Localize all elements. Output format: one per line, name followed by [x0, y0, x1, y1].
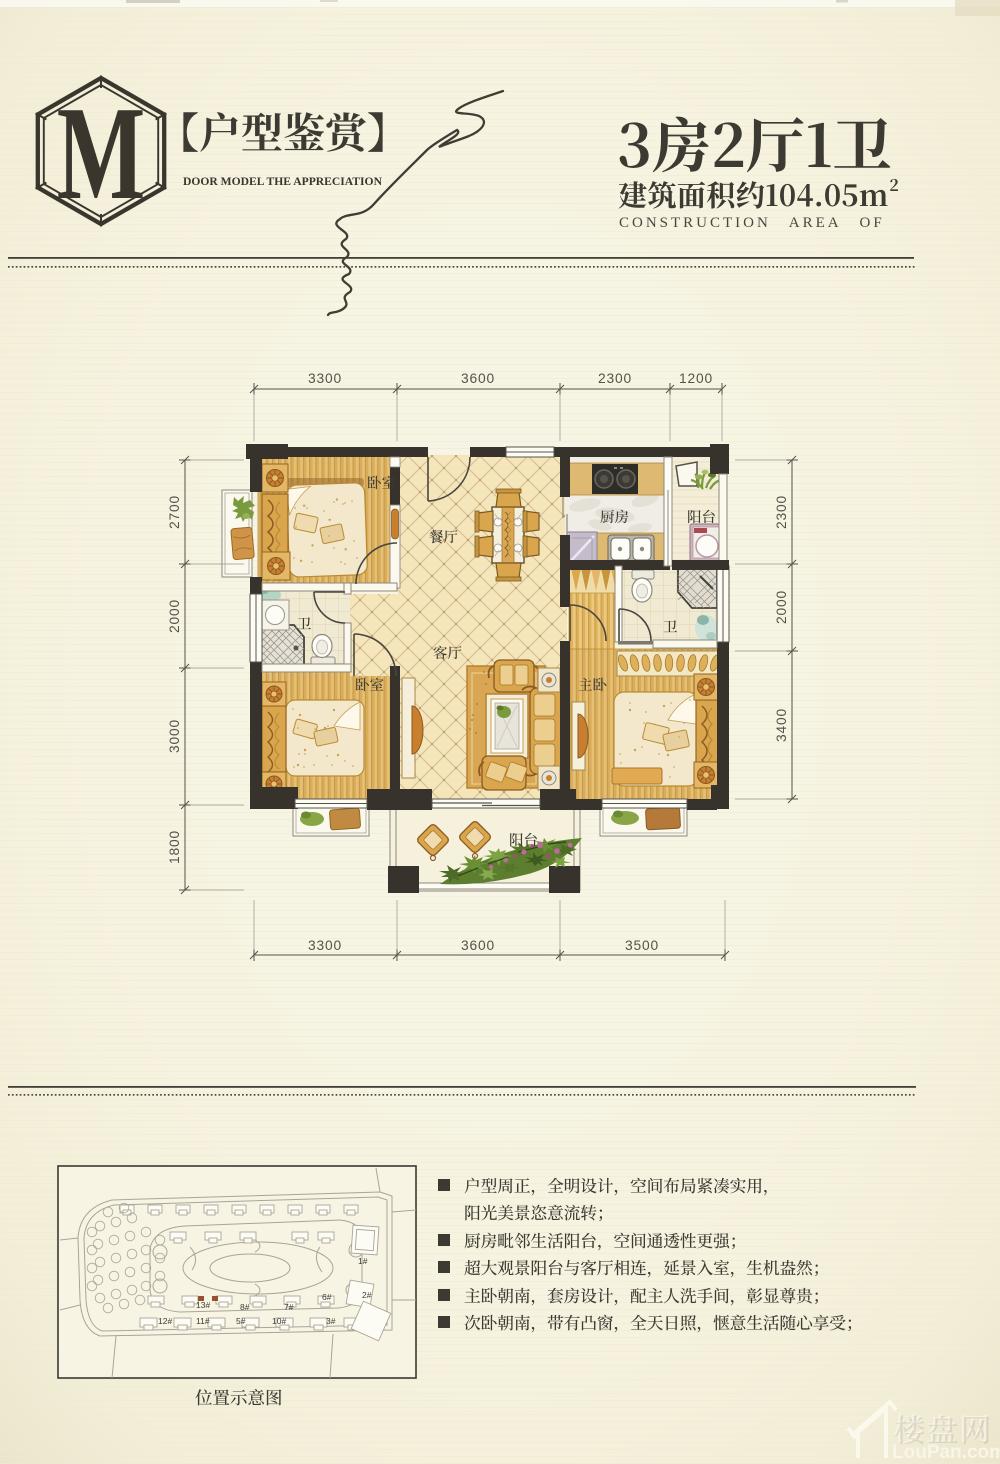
svg-text:5#: 5#: [236, 1316, 246, 1326]
svg-text:LouPan.com: LouPan.com: [892, 1442, 1000, 1463]
svg-text:3600: 3600: [461, 938, 495, 953]
svg-text:3#: 3#: [326, 1316, 336, 1326]
svg-text:2300: 2300: [598, 371, 632, 386]
svg-text:8#: 8#: [240, 1302, 250, 1312]
svg-text:CONSTRUCTION AREA OF: CONSTRUCTION AREA OF: [619, 215, 885, 231]
svg-text:1#: 1#: [358, 1256, 368, 1266]
svg-text:12#: 12#: [158, 1316, 172, 1326]
svg-text:3300: 3300: [308, 371, 342, 386]
svg-text:7#: 7#: [284, 1302, 294, 1312]
svg-text:3400: 3400: [774, 708, 789, 742]
svg-text:1800: 1800: [167, 830, 182, 864]
svg-text:1200: 1200: [679, 371, 713, 386]
svg-text:2300: 2300: [774, 495, 789, 529]
svg-text:3000: 3000: [167, 719, 182, 753]
svg-text:2000: 2000: [774, 590, 789, 624]
svg-text:3600: 3600: [461, 371, 495, 386]
svg-text:13#: 13#: [196, 1300, 210, 1310]
svg-text:10#: 10#: [272, 1316, 286, 1326]
svg-text:M: M: [57, 80, 146, 228]
svg-text:3300: 3300: [308, 938, 342, 953]
svg-text:6#: 6#: [322, 1292, 332, 1302]
svg-text:2700: 2700: [167, 495, 182, 529]
svg-text:DOOR MODEL THE APPRECIATION: DOOR MODEL THE APPRECIATION: [183, 175, 383, 188]
svg-text:3500: 3500: [625, 938, 659, 953]
svg-text:11#: 11#: [196, 1316, 210, 1326]
svg-text:2#: 2#: [362, 1290, 372, 1300]
svg-text:2000: 2000: [167, 599, 182, 633]
